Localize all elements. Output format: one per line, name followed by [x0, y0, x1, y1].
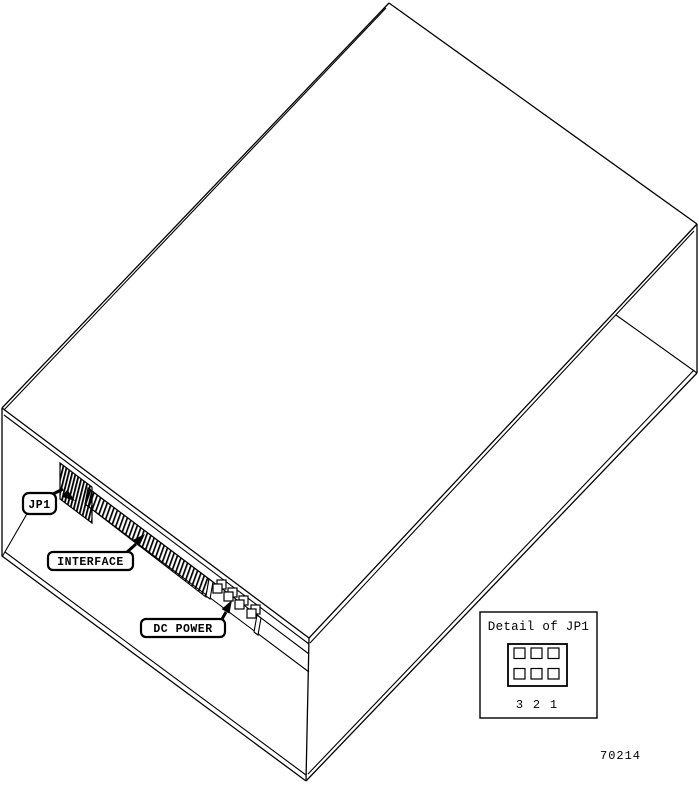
pin-number-3: 3	[516, 698, 523, 712]
cover-front-left-edge	[2, 408, 309, 638]
jumper-pin	[514, 669, 525, 680]
pin-number-1: 1	[550, 698, 557, 712]
jumper-pin	[548, 669, 559, 680]
jumper-pin	[531, 669, 542, 680]
detail-inset-title: Detail of JP1	[488, 620, 589, 634]
front-vertical-edge	[306, 638, 309, 781]
top-face-edge-right	[389, 3, 697, 224]
jumper-pin	[514, 648, 525, 659]
jp1-callout-label: JP1	[28, 499, 50, 512]
drive-isometric-diagram: JP1 INTERFACE DC POWER Detail of JP1 3 2…	[0, 0, 699, 785]
detail-inset: Detail of JP1 3 2 1	[480, 612, 597, 718]
callout-dc-power: DC POWER	[141, 600, 232, 637]
figure-canvas: JP1 INTERFACE DC POWER Detail of JP1 3 2…	[0, 0, 699, 785]
jumper-pin	[548, 648, 559, 659]
bottom-left-edge-inner	[5, 552, 306, 775]
dc-power-arrowhead-icon	[222, 600, 232, 614]
jumper-pin	[531, 648, 542, 659]
connector-band	[85, 488, 309, 672]
top-face-edge-left	[2, 3, 389, 408]
pin-number-2: 2	[533, 698, 540, 712]
dc-power-callout-label: DC POWER	[153, 623, 212, 636]
interface-callout-label: INTERFACE	[57, 556, 124, 569]
bottom-left-edge	[2, 556, 306, 781]
interface-connector-hatch	[85, 488, 209, 597]
interior-line-left	[2, 512, 28, 557]
bottom-right-edge	[306, 373, 697, 781]
interior-line-right	[616, 315, 697, 373]
interface-connector-strip	[85, 488, 209, 597]
cover-front-left-seam	[4, 415, 309, 644]
top-face-edge-left-inner	[4, 8, 386, 410]
part-number: 70214	[600, 749, 641, 763]
jumper-pin-numbers: 3 2 1	[516, 698, 557, 712]
dc-pin-1	[213, 580, 226, 593]
